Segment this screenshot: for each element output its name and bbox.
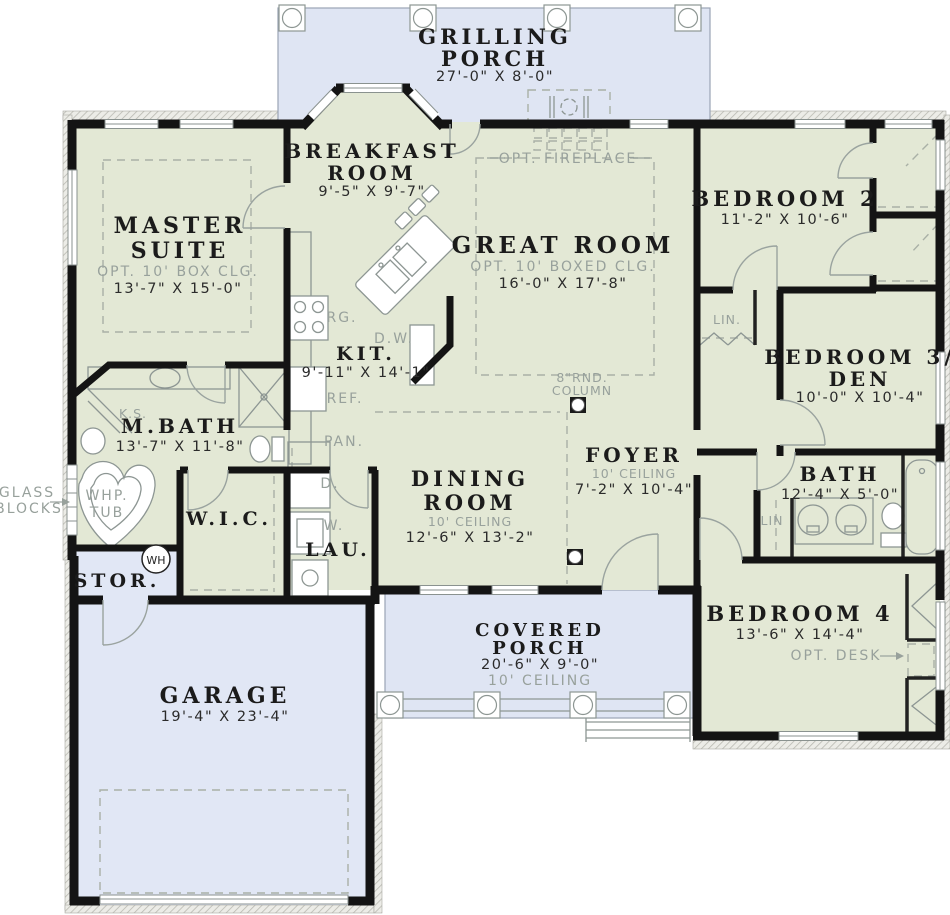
porch-steps [586,718,690,742]
bath-linen-label: LIN [760,513,783,528]
master-label: MASTER [114,213,247,239]
washer-label: W. [324,518,345,534]
whirlpool-label2: TUB [89,505,124,521]
floor-plan-page: GRILLING PORCH 27'-0" X 8'-0" OPT. FIREP… [0,0,950,915]
whirlpool-label: WHP. [85,488,128,504]
bath-toilet [882,503,904,529]
master-dims: 13'-7" X 15'-0" [114,281,243,297]
greatroom-label: GREAT ROOM [452,232,675,259]
opt-desk-label: OPT. DESK [791,648,882,664]
mbath-dims: 13'-7" X 11'-8" [116,439,245,455]
water-heater-label: WH [146,554,165,567]
pedestal-sink [81,428,105,454]
utility-sink [292,560,328,596]
covered-porch-dims: 20'-6" X 9'-0" [481,657,599,673]
bath-label: BATH [799,462,880,486]
greatroom-dims: 16'-0" X 17'-8" [499,276,628,292]
foyer-note: 10' CEILING [592,466,676,481]
dining-label: DINING [411,466,529,491]
bedroom3-dims: 10'-0" X 10'-4" [796,390,925,406]
breakfast-label: BREAKFAST [284,139,460,163]
dryer-label: D. [320,476,339,492]
garage-label: GARAGE [160,683,291,709]
wic-area [180,365,287,600]
kitchen-dims: 9'-11" X 14'-1" [302,365,431,381]
range [290,296,328,340]
laundry-label: LAU. [305,539,371,561]
opt-fireplace-label: OPT. FIREPLACE [499,151,638,167]
glass-block-window [67,465,77,535]
wic-label: W.I.C. [185,508,272,530]
round-column [572,399,585,412]
bedroom2-dims: 11'-2" X 10'-6" [721,212,850,228]
dining-dims: 12'-6" X 13'-2" [406,530,535,546]
glass-blocks-label2: BLOCKS [0,501,63,517]
foyer-label: FOYER [585,443,683,467]
bedroom2-label: BEDROOM 2 [691,186,878,211]
floor-plan-drawing: GRILLING PORCH 27'-0" X 8'-0" OPT. FIREP… [0,0,950,915]
bedroom4-label: BEDROOM 4 [706,601,893,626]
bedroom3-label2: DEN [829,367,892,391]
master-label2: SUITE [131,238,230,264]
knee-space-label: K.S. [119,406,147,421]
covered-porch-note: 10' CEILING [488,673,592,689]
grilling-porch-label2: PORCH [441,46,549,71]
range-label: RG. [326,310,357,326]
dishwasher-label: D.W. [374,331,414,347]
garage-area [74,600,370,905]
breakfast-dims: 9'-5" X 9'-7" [318,184,425,200]
bedroom4-dims: 13'-6" X 14'-4" [736,627,865,643]
garage-dims: 19'-4" X 23'-4" [161,709,290,725]
glass-blocks-label: GLASS [0,485,55,501]
bedroom3-label: BEDROOM 3/ [764,345,950,369]
bath-dims: 12'-4" X 5'-0" [781,487,899,503]
greatroom-note: OPT. 10' BOXED CLG. [470,259,655,275]
linen-label: LIN. [713,312,741,327]
dining-note: 10' CEILING [428,514,512,529]
refrigerator-label: REF. [327,391,364,407]
foyer-dims: 7'-2" X 10'-4" [575,482,693,498]
master-note: OPT. 10' BOX CLG. [97,264,259,280]
pantry-label: PAN. [324,434,364,450]
storage-label: STOR. [74,570,161,592]
round-column [569,551,582,564]
mbath-toilet [250,436,270,462]
column-label2: COLUMN [552,383,612,398]
dining-label2: ROOM [423,490,516,515]
grilling-porch-dims: 27'-0" X 8'-0" [436,69,554,85]
covered-porch-label2: PORCH [492,638,588,659]
breakfast-label2: ROOM [327,161,417,185]
